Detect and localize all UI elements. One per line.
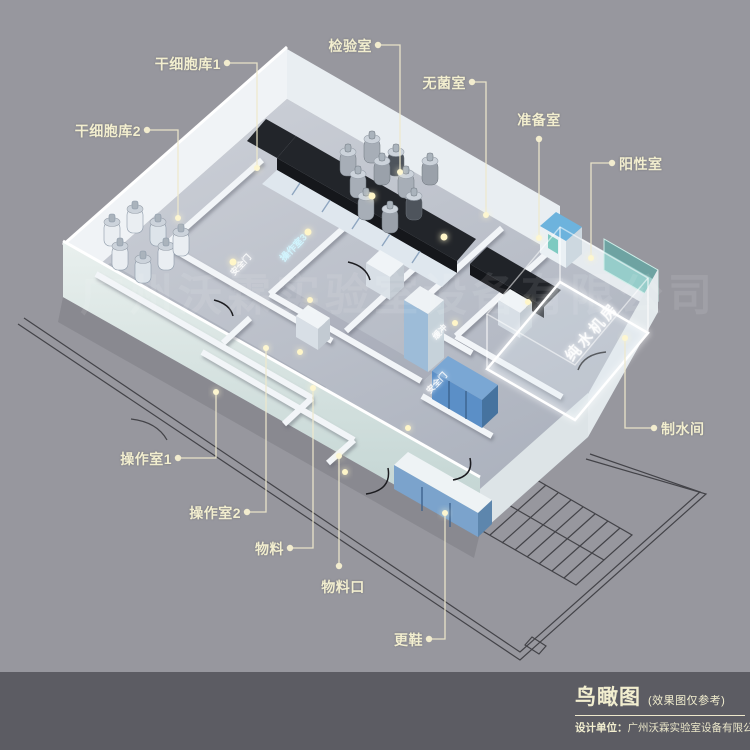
- callout-materials: 物料: [255, 539, 284, 559]
- callout-stem-cell-bank-2: 干细胞库2: [75, 121, 141, 141]
- callout-preparation-room: 准备室: [517, 110, 561, 130]
- designer-label: 设计单位：: [575, 720, 628, 735]
- callout-shoe-change: 更鞋: [394, 630, 423, 650]
- callout-sterile-room: 无菌室: [423, 73, 467, 93]
- title-block: 鸟瞰图 (效果图仅参考) 设计单位： 广州沃霖实验室设备有限公司: [575, 681, 745, 735]
- callout-positive-room: 阳性室: [619, 154, 663, 174]
- callout-operation-room-2: 操作室2: [189, 503, 241, 523]
- drawing-title: 鸟瞰图: [575, 681, 641, 711]
- callout-materials-port: 物料口: [321, 577, 365, 597]
- designer-name: 广州沃霖实验室设备有限公司: [628, 720, 750, 735]
- callout-inspection-room: 检验室: [329, 36, 373, 56]
- page: { "canvas": { "width": 750, "height": 75…: [0, 0, 750, 750]
- watermark-text: 广州沃霖实验室设备有限公司: [80, 270, 717, 320]
- callout-water-making-room: 制水间: [661, 419, 705, 439]
- callout-stem-cell-bank-1: 干细胞库1: [155, 54, 221, 74]
- drawing-subtitle: (效果图仅参考): [648, 692, 725, 708]
- cad-door-arc: [131, 419, 167, 440]
- isometric-lab-rendering: 纯水机房 操作室3 安全门 缓冲 安全门 广州沃霖实验室设备有限公司: [0, 0, 750, 750]
- callout-operation-room-1: 操作室1: [120, 449, 172, 469]
- title-divider: [575, 715, 745, 716]
